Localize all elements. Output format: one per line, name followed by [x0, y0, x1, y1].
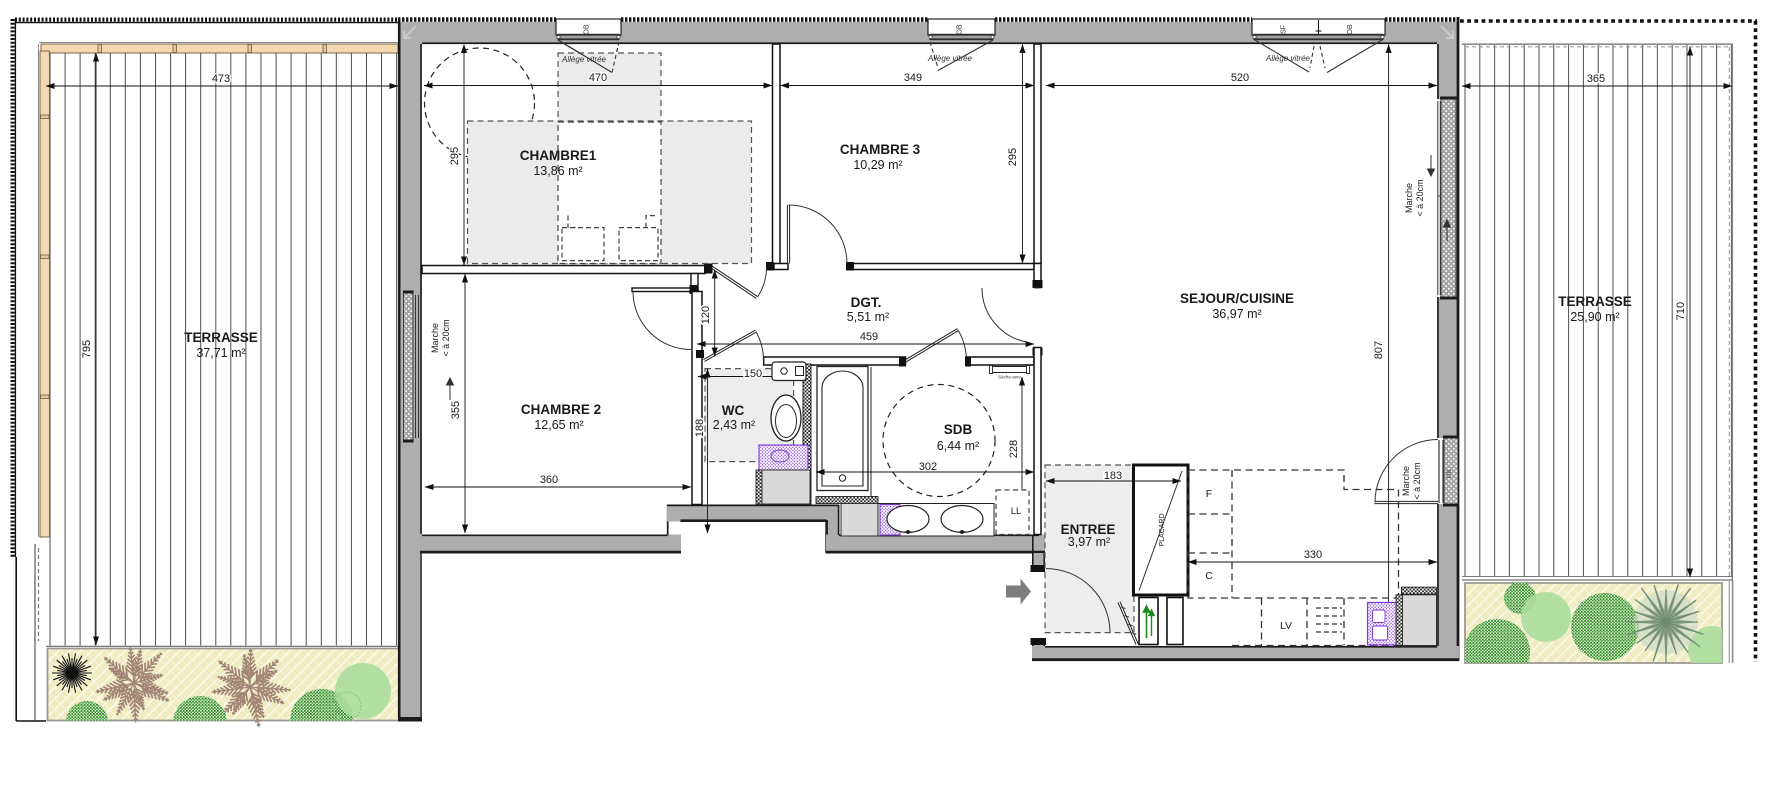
svg-text:Allège vitrée: Allège vitrée	[927, 54, 973, 63]
svg-text:795: 795	[81, 340, 93, 358]
svg-text:25,90 m²: 25,90 m²	[1570, 310, 1619, 324]
svg-text:12,65 m²: 12,65 m²	[534, 418, 583, 432]
svg-text:TERRASSE: TERRASSE	[184, 330, 258, 345]
svg-text:3,97 m²: 3,97 m²	[1068, 535, 1110, 549]
svg-text:OB: OB	[1347, 24, 1354, 34]
svg-text:Allège vitrée: Allège vitrée	[561, 55, 607, 64]
svg-text:473: 473	[212, 73, 230, 85]
svg-text:OB: OB	[1447, 470, 1453, 479]
svg-text:Allège vitrée: Allège vitrée	[1265, 54, 1311, 63]
svg-text:120: 120	[700, 306, 712, 324]
svg-text:Marche: Marche	[1401, 466, 1411, 496]
svg-text:< à 20cm: < à 20cm	[1415, 179, 1425, 216]
svg-text:355: 355	[450, 401, 462, 419]
svg-text:349: 349	[904, 72, 922, 84]
svg-text:Sèche-serv.: Sèche-serv.	[998, 375, 1022, 380]
svg-text:SEJOUR/CUISINE: SEJOUR/CUISINE	[1180, 291, 1294, 306]
svg-text:< à 20cm: < à 20cm	[441, 319, 451, 356]
svg-text:188: 188	[694, 419, 706, 437]
svg-text:330: 330	[1304, 549, 1322, 561]
svg-text:CHAMBRE 2: CHAMBRE 2	[521, 402, 601, 417]
svg-text:CHAMBRE1: CHAMBRE1	[520, 148, 597, 163]
svg-text:302: 302	[919, 461, 937, 473]
svg-text:PLACARD: PLACARD	[1159, 513, 1166, 546]
svg-text:Marche: Marche	[1404, 183, 1414, 213]
svg-text:520: 520	[1231, 72, 1249, 84]
svg-text:13,86 m²: 13,86 m²	[533, 164, 582, 178]
svg-text:36,97 m²: 36,97 m²	[1212, 307, 1261, 321]
svg-text:360: 360	[540, 474, 558, 486]
svg-text:WC: WC	[722, 403, 745, 418]
svg-text:SF: SF	[1280, 25, 1287, 34]
svg-text:< à 20cm: < à 20cm	[1412, 462, 1422, 499]
svg-text:295: 295	[1007, 148, 1019, 166]
svg-text:6,44 m²: 6,44 m²	[937, 439, 979, 453]
svg-text:LL: LL	[1011, 506, 1022, 517]
svg-text:470: 470	[589, 72, 607, 84]
svg-text:OB: OB	[957, 24, 964, 34]
svg-text:183: 183	[1104, 470, 1122, 482]
svg-text:C: C	[1205, 570, 1213, 582]
svg-text:150: 150	[744, 368, 762, 380]
svg-text:37,71 m²: 37,71 m²	[196, 346, 245, 360]
svg-text:SDB: SDB	[944, 422, 973, 437]
svg-text:807: 807	[1373, 341, 1385, 359]
svg-text:TERRASSE: TERRASSE	[1558, 294, 1632, 309]
svg-text:2,43 m²: 2,43 m²	[713, 418, 755, 432]
svg-text:DGT.: DGT.	[851, 295, 882, 310]
svg-text:710: 710	[1675, 302, 1687, 320]
svg-text:228: 228	[1008, 440, 1020, 458]
svg-text:F: F	[1206, 488, 1212, 500]
svg-text:OB: OB	[584, 24, 591, 34]
svg-text:10,29 m²: 10,29 m²	[853, 158, 902, 172]
svg-text:CHAMBRE 3: CHAMBRE 3	[840, 142, 921, 157]
svg-text:5,51 m²: 5,51 m²	[847, 310, 889, 324]
svg-text:295: 295	[449, 147, 461, 165]
svg-text:459: 459	[860, 331, 878, 343]
svg-text:LV: LV	[1280, 620, 1292, 632]
svg-text:365: 365	[1587, 73, 1605, 85]
svg-text:Marche: Marche	[430, 323, 440, 353]
